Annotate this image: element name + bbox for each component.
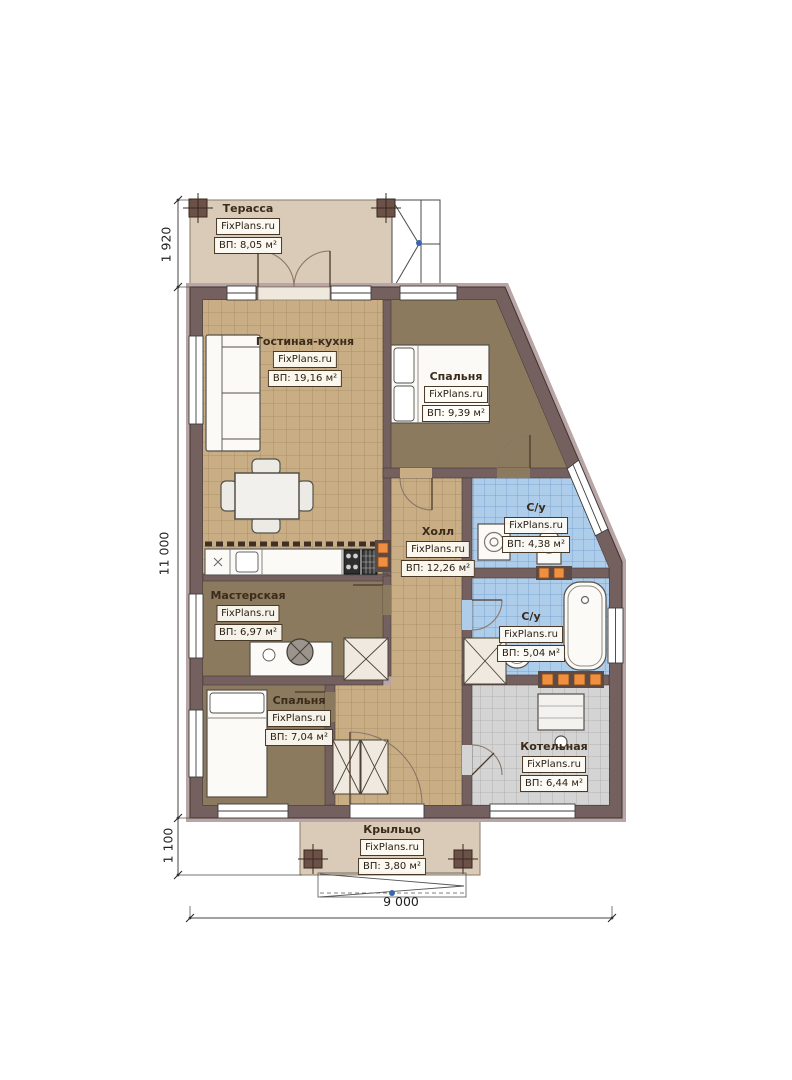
room-area: ВП: 9,39 м² — [422, 405, 490, 422]
window-bottom-2 — [490, 804, 575, 818]
dim-porch-depth: 1 100 — [161, 816, 176, 876]
room-name: Спальня — [430, 371, 483, 384]
room-name: С/у — [521, 611, 540, 624]
room-name: Терасса — [223, 203, 274, 216]
terrace-door-threshold — [258, 287, 330, 300]
room-label-terrace: Терасса FixPlans.ru ВП: 8,05 м² — [214, 203, 282, 254]
room-area: ВП: 3,80 м² — [358, 858, 426, 875]
dim-house-width: 9 000 — [371, 894, 431, 909]
room-brand: FixPlans.ru — [273, 351, 337, 368]
room-area: ВП: 6,44 м² — [520, 775, 588, 792]
window-left-1 — [189, 336, 203, 424]
room-name: Спальня — [273, 695, 326, 708]
room-area: ВП: 19,16 м² — [268, 370, 342, 387]
room-brand: FixPlans.ru — [360, 839, 424, 856]
reference-marker — [416, 240, 422, 246]
room-label-bedroom1: Спальня FixPlans.ru ВП: 9,39 м² — [422, 371, 490, 422]
floor-plan-drawing — [0, 0, 792, 1080]
entrance-threshold — [350, 804, 424, 818]
window-right-1 — [608, 608, 623, 663]
room-name: Крыльцо — [363, 824, 421, 837]
bathtub — [564, 582, 606, 670]
room-area: ВП: 7,04 м² — [265, 729, 333, 746]
room-label-bath1: С/у FixPlans.ru ВП: 4,38 м² — [502, 502, 570, 553]
room-area: ВП: 12,26 м² — [401, 560, 475, 577]
bed-bedroom2 — [207, 690, 267, 797]
room-name: Котельная — [520, 741, 587, 754]
room-label-bedroom2: Спальня FixPlans.ru ВП: 7,04 м² — [265, 695, 333, 746]
window-bottom-1 — [218, 804, 288, 818]
room-brand: FixPlans.ru — [267, 710, 331, 727]
sofa — [206, 335, 260, 451]
kitchen-counter — [205, 544, 377, 575]
exterior-stair — [392, 200, 440, 290]
kitchen-sink — [236, 552, 258, 572]
window-left-3 — [189, 710, 203, 777]
room-area: ВП: 5,04 м² — [497, 645, 565, 662]
room-brand: FixPlans.ru — [406, 541, 470, 558]
room-brand: FixPlans.ru — [522, 756, 586, 773]
room-area: ВП: 8,05 м² — [214, 237, 282, 254]
room-name: Холл — [422, 526, 454, 539]
room-label-living: Гостиная-кухня FixPlans.ru ВП: 19,16 м² — [256, 336, 354, 387]
room-area: ВП: 6,97 м² — [214, 624, 282, 641]
dim-terrace-depth: 1 920 — [159, 215, 174, 275]
window-left-2 — [189, 594, 203, 658]
oven-grill — [362, 550, 377, 574]
room-name: С/у — [526, 502, 545, 515]
window-top-3 — [400, 286, 457, 300]
room-name: Мастерская — [210, 590, 285, 603]
room-brand: FixPlans.ru — [216, 218, 280, 235]
room-label-bath2: С/у FixPlans.ru ВП: 5,04 м² — [497, 611, 565, 662]
floor-plan-page: Терасса FixPlans.ru ВП: 8,05 м² Гостиная… — [0, 0, 792, 1080]
room-area: ВП: 4,38 м² — [502, 536, 570, 553]
room-label-workshop: Мастерская FixPlans.ru ВП: 6,97 м² — [210, 590, 285, 641]
room-label-hall: Холл FixPlans.ru ВП: 12,26 м² — [401, 526, 475, 577]
workshop-desk — [250, 639, 332, 676]
room-label-boiler: Котельная FixPlans.ru ВП: 6,44 м² — [520, 741, 588, 792]
window-top-1 — [227, 286, 256, 300]
room-brand: FixPlans.ru — [216, 605, 280, 622]
stove — [344, 550, 360, 574]
room-brand: FixPlans.ru — [424, 386, 488, 403]
room-label-porch: Крыльцо FixPlans.ru ВП: 3,80 м² — [358, 824, 426, 875]
window-top-2 — [331, 286, 371, 300]
room-brand: FixPlans.ru — [499, 626, 563, 643]
room-name: Гостиная-кухня — [256, 336, 354, 349]
dim-house-depth: 11 000 — [157, 524, 172, 584]
room-brand: FixPlans.ru — [504, 517, 568, 534]
